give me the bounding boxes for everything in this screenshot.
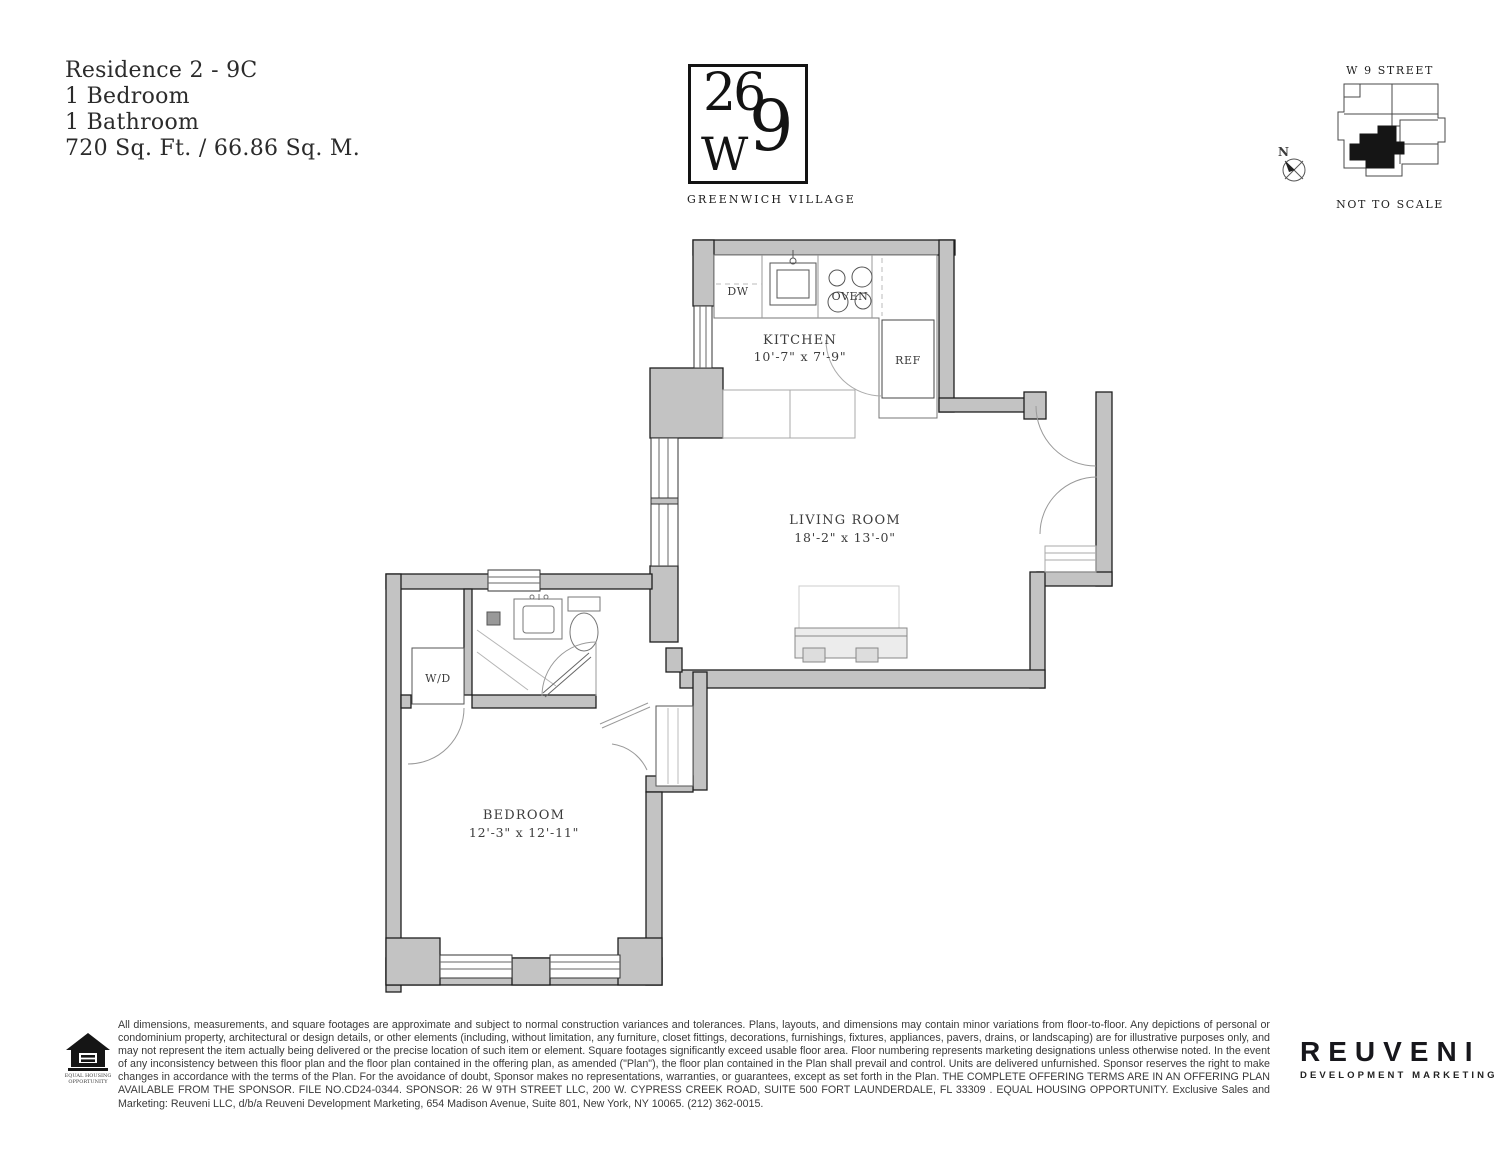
kitchen-label: KITCHEN <box>763 333 837 348</box>
hall-elements <box>600 703 693 786</box>
bathroom-window <box>488 570 540 591</box>
unit-location-marker <box>1350 126 1404 168</box>
ref-label: REF <box>895 354 921 367</box>
bathroom-count: 1 Bathroom <box>65 110 360 136</box>
closet-door-swing <box>1040 477 1097 534</box>
shower-drain <box>487 612 500 625</box>
key-plan-svg: W 9 STREET N NOT TO SCALE <box>1262 58 1472 216</box>
living-room-label: LIVING ROOM <box>789 513 901 528</box>
kitchen-left-window <box>694 306 712 368</box>
brand-subtitle: DEVELOPMENT MARKETING <box>1300 1070 1498 1081</box>
unit-info: Residence 2 - 9C 1 Bedroom 1 Bathroom 72… <box>65 58 360 162</box>
laundry-closet: W/D <box>408 648 464 764</box>
shaft-closet <box>656 706 693 786</box>
floor-plan-svg: DW OVEN REF <box>370 225 1130 1015</box>
marketing-brand: REUVENI DEVELOPMENT MARKETING <box>1300 1038 1498 1081</box>
bathroom-fixtures <box>477 594 600 697</box>
street-label: W 9 STREET <box>1346 64 1434 77</box>
north-label: N <box>1278 145 1289 159</box>
kitchen-dims: 10'-7" x 7'-9" <box>754 349 847 364</box>
bedroom-count: 1 Bedroom <box>65 84 360 110</box>
building-logo: 26 9 W GREENWICH VILLAGE <box>687 64 809 206</box>
compass: N <box>1278 145 1305 181</box>
wd-door-swing <box>408 708 464 764</box>
entry-and-closets <box>1036 406 1097 572</box>
brand-name: REUVENI <box>1300 1038 1498 1066</box>
closet-shelves <box>1045 546 1096 572</box>
bedroom-label: BEDROOM <box>483 808 565 823</box>
bedroom-window-right <box>550 955 620 978</box>
kitchen-peninsula <box>723 390 855 438</box>
bedroom-window-left <box>440 955 512 978</box>
dw-label: DW <box>727 285 748 298</box>
key-building-outline <box>1338 84 1445 176</box>
key-plan: W 9 STREET N NOT TO SCALE <box>1262 58 1472 220</box>
wd-label: W/D <box>425 672 451 685</box>
floor-plan: DW OVEN REF <box>370 225 1130 1019</box>
not-to-scale-label: NOT TO SCALE <box>1336 198 1444 211</box>
logo-w: W <box>701 131 748 177</box>
bedroom-door <box>600 703 650 770</box>
living-window-unit <box>795 586 907 662</box>
vanity-sink <box>514 594 562 639</box>
logo-9: 9 <box>749 91 794 161</box>
living-room-window <box>651 438 678 566</box>
legal-disclaimer: All dimensions, measurements, and square… <box>118 1019 1270 1111</box>
residence-title: Residence 2 - 9C <box>65 58 360 84</box>
floorplan-page: Residence 2 - 9C 1 Bedroom 1 Bathroom 72… <box>0 0 1500 1159</box>
compass-needle <box>1285 161 1295 172</box>
oven-label: OVEN <box>832 290 869 303</box>
living-room-dims: 18'-2" x 13'-0" <box>794 530 896 545</box>
bedroom-dims: 12'-3" x 12'-11" <box>469 825 579 840</box>
unit-area: 720 Sq. Ft. / 66.86 Sq. M. <box>65 136 360 162</box>
equal-housing-logo: EQUAL HOUSING OPPORTUNITY <box>62 1030 114 1090</box>
neighborhood-label: GREENWICH VILLAGE <box>687 193 809 206</box>
logo-monogram: 26 9 W <box>688 64 808 184</box>
eho-text-2: OPPORTUNITY <box>68 1079 108 1085</box>
